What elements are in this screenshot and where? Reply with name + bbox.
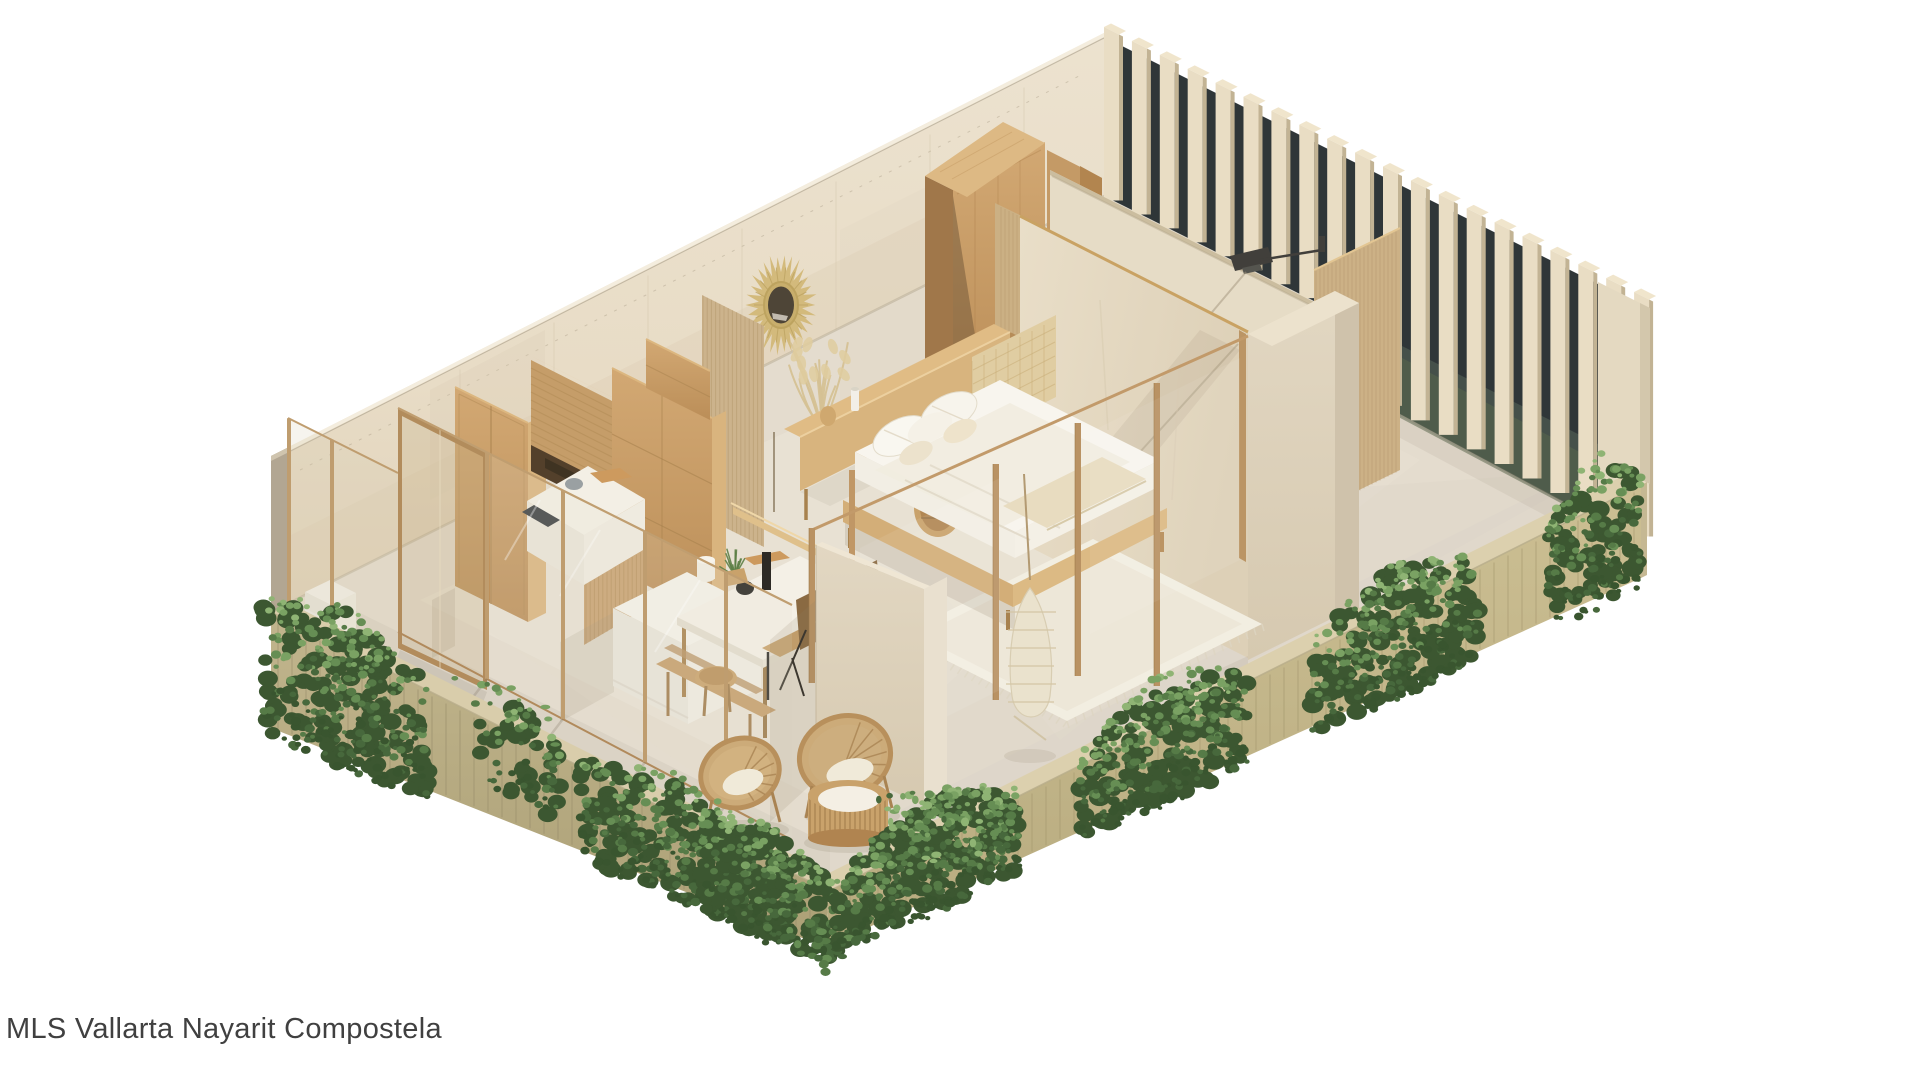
svg-text:MLS Vallarta Nayarit Compostel: MLS Vallarta Nayarit Compostela — [6, 1013, 442, 1045]
